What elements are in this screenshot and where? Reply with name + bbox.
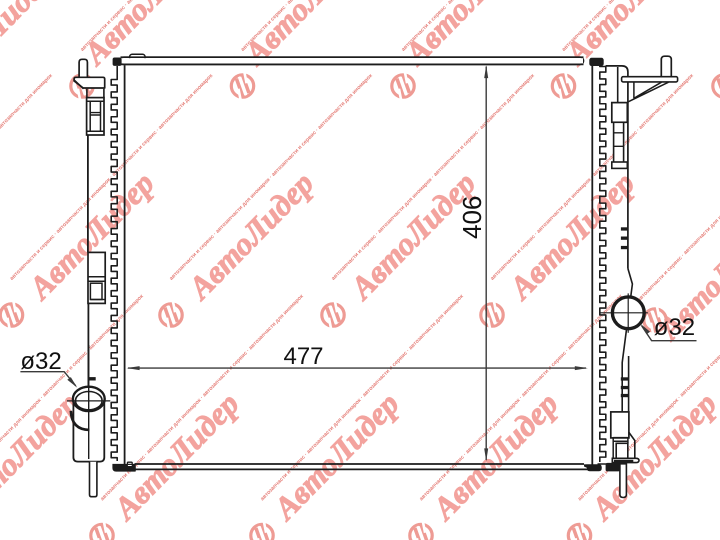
svg-text:477: 477 (283, 343, 323, 370)
svg-text:406: 406 (457, 196, 487, 239)
svg-text:ø32: ø32 (654, 314, 695, 341)
svg-text:ø32: ø32 (20, 348, 61, 375)
